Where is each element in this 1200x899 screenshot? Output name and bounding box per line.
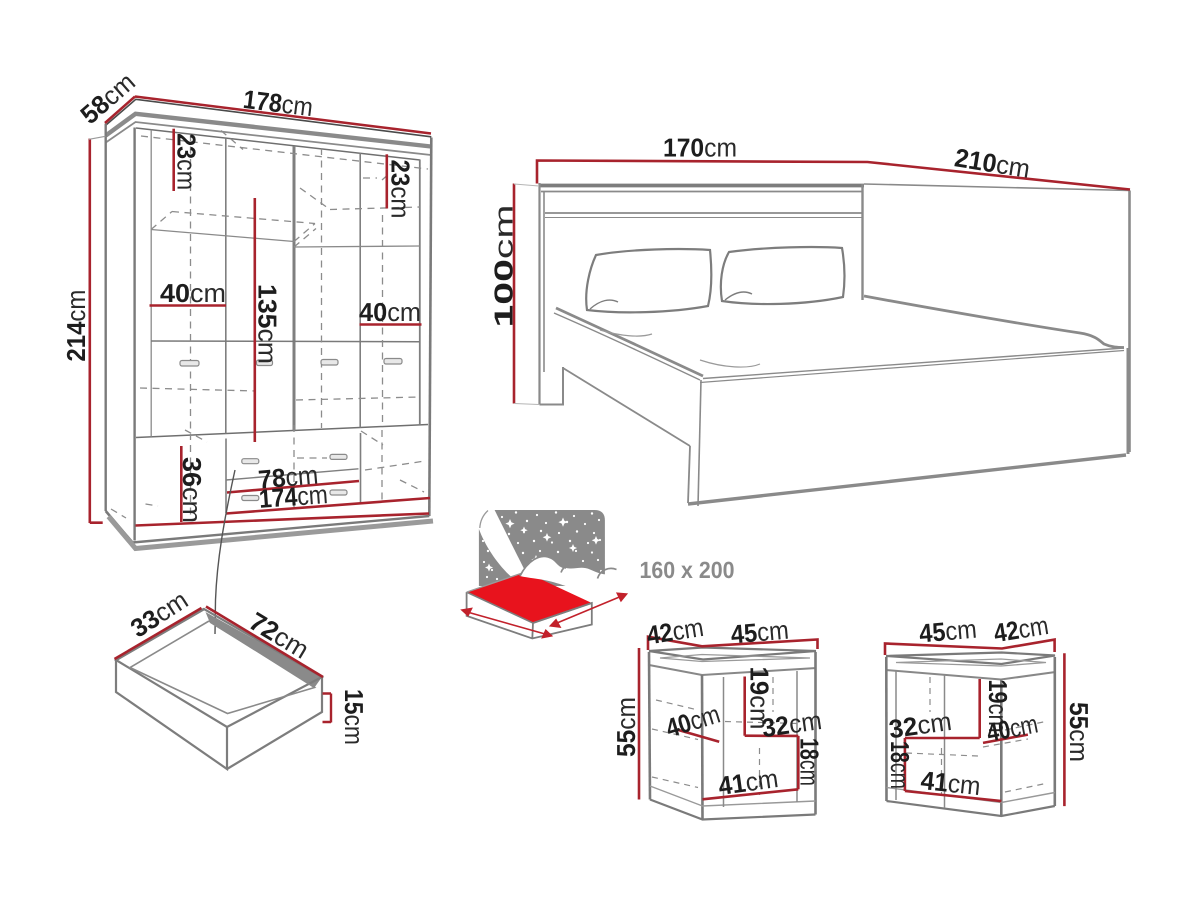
svg-text:18cm: 18cm: [795, 738, 825, 786]
svg-text:55cm: 55cm: [1064, 702, 1094, 762]
svg-text:174cm: 174cm: [258, 479, 329, 514]
svg-text:178cm: 178cm: [242, 84, 315, 122]
svg-text:214cm: 214cm: [61, 290, 91, 362]
svg-text:210cm: 210cm: [953, 142, 1033, 184]
svg-text:40cm: 40cm: [160, 278, 226, 308]
svg-text:55cm: 55cm: [611, 697, 641, 757]
svg-text:45cm: 45cm: [730, 615, 790, 650]
svg-text:41cm: 41cm: [919, 765, 982, 801]
svg-text:23cm: 23cm: [386, 160, 416, 219]
svg-text:160 x 200: 160 x 200: [640, 557, 735, 583]
svg-text:40cm: 40cm: [359, 297, 421, 327]
svg-text:45cm: 45cm: [918, 614, 978, 649]
svg-text:135cm: 135cm: [253, 284, 283, 364]
svg-text:41cm: 41cm: [716, 763, 780, 801]
svg-text:170cm: 170cm: [663, 133, 737, 163]
svg-text:36cm: 36cm: [177, 457, 207, 523]
svg-text:100cm: 100cm: [489, 205, 519, 328]
svg-text:15cm: 15cm: [339, 689, 369, 745]
svg-text:18cm: 18cm: [885, 741, 915, 789]
svg-text:23cm: 23cm: [172, 133, 202, 190]
svg-text:40cm: 40cm: [662, 699, 723, 744]
